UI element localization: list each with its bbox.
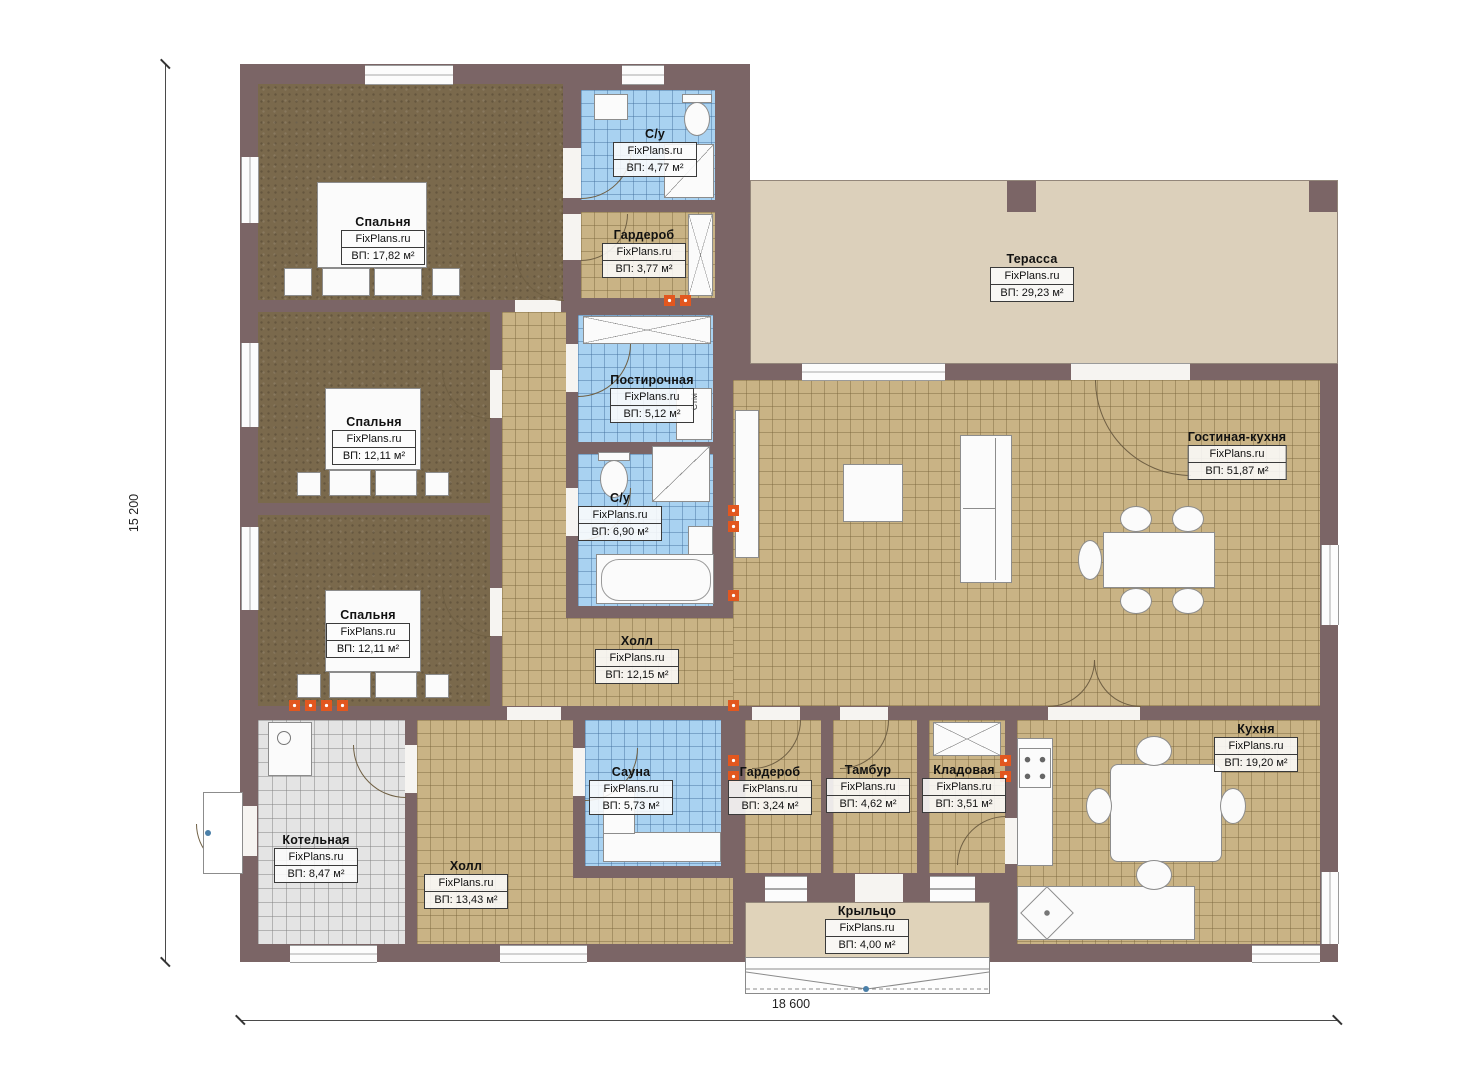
room-brand: FixPlans.ru <box>825 919 909 937</box>
vent-marker <box>664 295 675 306</box>
room-name: Гардероб <box>602 228 686 242</box>
room-label-laundry: Постирочная FixPlans.ru ВП: 5,12 м² <box>610 373 694 423</box>
room-name: Крыльцо <box>825 904 909 918</box>
room-area: ВП: 5,73 м² <box>589 798 673 815</box>
room-brand: FixPlans.ru <box>610 388 694 406</box>
room-name: Кухня <box>1214 722 1298 736</box>
sauna-bench <box>603 832 721 862</box>
chair <box>1220 788 1246 824</box>
living-kitchen-floor <box>733 380 1320 706</box>
porch-window <box>930 876 975 902</box>
window <box>365 65 453 85</box>
sink <box>594 94 628 120</box>
vent-marker <box>321 700 332 711</box>
door-opening <box>573 748 585 796</box>
laundry-cabinet <box>583 316 711 344</box>
room-name: Спальня <box>341 215 425 229</box>
sofa-back <box>995 438 996 580</box>
room-brand: FixPlans.ru <box>589 780 673 798</box>
room-brand: FixPlans.ru <box>728 780 812 798</box>
nightstand <box>432 268 460 296</box>
chair <box>1172 506 1204 532</box>
door-opening <box>490 370 502 418</box>
room-brand: FixPlans.ru <box>326 623 410 641</box>
chair <box>1086 788 1112 824</box>
door-opening <box>840 707 888 720</box>
room-label-boiler: Котельная FixPlans.ru ВП: 8,47 м² <box>274 833 358 883</box>
room-label-wardrobe-1: Гардероб FixPlans.ru ВП: 3,77 м² <box>602 228 686 278</box>
window <box>241 343 259 427</box>
room-name: Постирочная <box>610 373 694 387</box>
bed-pillow <box>375 470 417 496</box>
nightstand <box>425 472 449 496</box>
room-label-porch: Крыльцо FixPlans.ru ВП: 4,00 м² <box>825 904 909 954</box>
door-opening <box>507 707 561 720</box>
room-brand: FixPlans.ru <box>922 778 1006 796</box>
room-name: Кладовая <box>922 763 1006 777</box>
room-label-bedroom-3: Спальня FixPlans.ru ВП: 12,11 м² <box>326 608 410 658</box>
vent-marker <box>728 700 739 711</box>
room-area: ВП: 8,47 м² <box>274 866 358 883</box>
window <box>1321 872 1339 944</box>
door-opening <box>566 488 578 536</box>
room-label-sauna: Сауна FixPlans.ru ВП: 5,73 м² <box>589 765 673 815</box>
room-name: Спальня <box>332 415 416 429</box>
room-brand: FixPlans.ru <box>1214 737 1298 755</box>
room-name: С/у <box>578 491 662 505</box>
room-brand: FixPlans.ru <box>826 778 910 796</box>
nightstand <box>284 268 312 296</box>
vent-marker <box>728 505 739 516</box>
window <box>622 65 664 85</box>
room-name: Спальня <box>326 608 410 622</box>
room-brand: FixPlans.ru <box>578 506 662 524</box>
room-area: ВП: 51,87 м² <box>1188 463 1287 480</box>
room-name: Терасса <box>990 252 1074 266</box>
door-opening <box>566 344 578 392</box>
nightstand <box>297 674 321 698</box>
room-brand: FixPlans.ru <box>274 848 358 866</box>
room-area: ВП: 4,77 м² <box>613 160 697 177</box>
room-area: ВП: 5,12 м² <box>610 406 694 423</box>
vent-marker <box>289 700 300 711</box>
room-name: Котельная <box>274 833 358 847</box>
bathtub <box>596 554 714 604</box>
terrace-door-opening <box>1071 363 1190 380</box>
bed-pillow <box>375 672 417 698</box>
room-label-wardrobe-2: Гардероб FixPlans.ru ВП: 3,24 м² <box>728 765 812 815</box>
room-area: ВП: 29,23 м² <box>990 285 1074 302</box>
boiler-unit <box>268 722 312 776</box>
room-label-terrace: Терасса FixPlans.ru ВП: 29,23 м² <box>990 252 1074 302</box>
wardrobe-cabinet <box>688 214 713 296</box>
chair <box>1172 588 1204 614</box>
room-label-living-kitchen: Гостиная-кухня FixPlans.ru ВП: 51,87 м² <box>1188 430 1287 480</box>
dimension-line-vertical <box>165 64 166 962</box>
door-opening <box>515 300 561 312</box>
dimension-height-label: 15 200 <box>127 494 141 532</box>
room-label-hall-lower: Холл FixPlans.ru ВП: 13,43 м² <box>424 859 508 909</box>
room-brand: FixPlans.ru <box>1188 445 1287 463</box>
room-label-bathroom-1: С/у FixPlans.ru ВП: 4,77 м² <box>613 127 697 177</box>
room-label-pantry: Кладовая FixPlans.ru ВП: 3,51 м² <box>922 763 1006 813</box>
room-area: ВП: 13,43 м² <box>424 892 508 909</box>
bed-pillow <box>329 672 371 698</box>
room-brand: FixPlans.ru <box>424 874 508 892</box>
nightstand <box>297 472 321 496</box>
room-name: Холл <box>595 634 679 648</box>
room-area: ВП: 19,20 м² <box>1214 755 1298 772</box>
room-label-hall-upper: Холл FixPlans.ru ВП: 12,15 м² <box>595 634 679 684</box>
window <box>241 157 259 223</box>
room-name: Тамбур <box>826 763 910 777</box>
floor-plan: СтМ Спальня <box>0 0 1474 1080</box>
nightstand <box>425 674 449 698</box>
window <box>1252 945 1320 963</box>
bed-pillow <box>322 268 370 296</box>
window <box>290 945 377 963</box>
vent-marker <box>728 521 739 532</box>
pantry-shelf <box>933 722 1001 756</box>
room-area: ВП: 6,90 м² <box>578 524 662 541</box>
room-name: Гардероб <box>728 765 812 779</box>
door-opening <box>1048 707 1140 720</box>
room-brand: FixPlans.ru <box>332 430 416 448</box>
room-label-kitchen: Кухня FixPlans.ru ВП: 19,20 м² <box>1214 722 1298 772</box>
tv-cabinet <box>735 410 759 558</box>
room-brand: FixPlans.ru <box>341 230 425 248</box>
door-opening <box>563 214 581 260</box>
room-label-tambour: Тамбур FixPlans.ru ВП: 4,62 м² <box>826 763 910 813</box>
bathtub-inner <box>601 559 711 601</box>
porch-window <box>765 876 807 902</box>
bed-pillow <box>374 268 422 296</box>
terrace-pillar <box>1007 181 1036 212</box>
room-label-bedroom-1: Спальня FixPlans.ru ВП: 17,82 м² <box>341 215 425 265</box>
chair <box>1136 736 1172 766</box>
bed-pillow <box>329 470 371 496</box>
window <box>802 363 945 381</box>
room-area: ВП: 17,82 м² <box>341 248 425 265</box>
chair <box>1120 506 1152 532</box>
room-area: ВП: 3,51 м² <box>922 796 1006 813</box>
room-name: С/у <box>613 127 697 141</box>
room-area: ВП: 4,62 м² <box>826 796 910 813</box>
stove <box>1019 748 1051 788</box>
room-area: ВП: 12,11 м² <box>326 641 410 658</box>
room-label-bathroom-2: С/у FixPlans.ru ВП: 6,90 м² <box>578 491 662 541</box>
marker-dot <box>863 986 869 992</box>
vent-marker <box>680 295 691 306</box>
room-name: Холл <box>424 859 508 873</box>
sofa-seat-line <box>963 508 995 509</box>
window <box>500 945 587 963</box>
chair <box>1136 860 1172 890</box>
room-brand: FixPlans.ru <box>602 243 686 261</box>
window <box>241 527 259 610</box>
marker-dot <box>205 830 211 836</box>
window <box>1321 545 1339 625</box>
room-area: ВП: 12,11 м² <box>332 448 416 465</box>
kitchen-table <box>1110 764 1222 862</box>
door-opening <box>490 588 502 636</box>
room-brand: FixPlans.ru <box>613 142 697 160</box>
door-opening <box>405 745 417 793</box>
door-opening <box>1005 818 1017 864</box>
door-opening <box>241 806 257 856</box>
room-area: ВП: 3,24 м² <box>728 798 812 815</box>
room-area: ВП: 3,77 м² <box>602 261 686 278</box>
room-brand: FixPlans.ru <box>990 267 1074 285</box>
coffee-table <box>843 464 903 522</box>
dining-table <box>1103 532 1215 588</box>
vent-marker <box>728 590 739 601</box>
sofa <box>960 435 1012 583</box>
entrance-door-opening <box>855 874 903 902</box>
room-area: ВП: 4,00 м² <box>825 937 909 954</box>
dimension-width-label: 18 600 <box>772 997 810 1011</box>
dimension-line-horizontal <box>240 1020 1338 1021</box>
room-name: Гостиная-кухня <box>1188 430 1287 444</box>
chair <box>1078 540 1102 580</box>
vent-marker <box>305 700 316 711</box>
room-area: ВП: 12,15 м² <box>595 667 679 684</box>
terrace-pillar <box>1309 181 1337 212</box>
room-label-bedroom-2: Спальня FixPlans.ru ВП: 12,11 м² <box>332 415 416 465</box>
room-name: Сауна <box>589 765 673 779</box>
room-brand: FixPlans.ru <box>595 649 679 667</box>
door-opening <box>563 148 581 198</box>
vent-marker <box>337 700 348 711</box>
chair <box>1120 588 1152 614</box>
door-opening <box>752 707 800 720</box>
boiler-dial <box>277 731 291 745</box>
